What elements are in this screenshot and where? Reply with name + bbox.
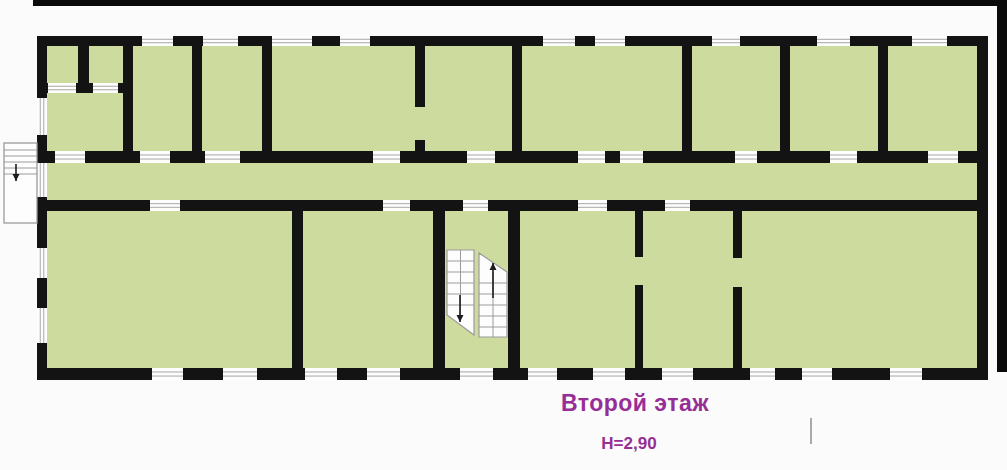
door-opening	[373, 151, 400, 163]
window-opening	[272, 36, 312, 46]
door-opening	[48, 83, 76, 93]
window-opening	[543, 36, 575, 46]
window-opening	[712, 36, 740, 46]
window-opening	[460, 368, 493, 380]
door-opening	[735, 151, 757, 163]
window-opening	[817, 36, 850, 46]
door-opening	[578, 200, 607, 211]
wall-segment	[733, 287, 742, 380]
door-opening	[620, 151, 643, 163]
door-opening	[463, 200, 488, 211]
door-opening	[665, 200, 690, 211]
floor-plan-screenshot: Второй этаж H=2,90	[0, 0, 1007, 470]
wall-segment	[78, 36, 89, 93]
window-opening	[528, 368, 557, 380]
floor-plan-svg	[0, 0, 1007, 470]
window-opening	[340, 36, 370, 46]
window-opening	[912, 36, 947, 46]
right-edge-bar	[997, 0, 1007, 372]
door-opening	[55, 151, 85, 163]
window-opening	[305, 368, 337, 380]
wall-segment	[508, 200, 520, 380]
door-opening	[37, 163, 47, 197]
window-opening	[203, 36, 238, 46]
door-opening	[830, 151, 857, 163]
wall-segment	[123, 36, 133, 163]
window-opening	[37, 98, 47, 135]
window-opening	[142, 36, 173, 46]
wall-segment	[733, 200, 742, 258]
wall-segment	[433, 200, 445, 380]
window-opening	[367, 368, 400, 380]
window-opening	[662, 368, 693, 380]
window-opening	[802, 368, 832, 380]
window-opening	[595, 36, 625, 46]
door-opening	[383, 200, 410, 211]
wall-segment	[635, 200, 643, 257]
wall-segment	[192, 36, 202, 163]
wall-segment	[512, 36, 522, 163]
window-opening	[750, 368, 775, 380]
door-opening	[150, 200, 180, 211]
window-opening	[37, 248, 47, 278]
door-opening	[205, 151, 240, 163]
top-edge-bar	[33, 0, 1007, 6]
stray-tick-mark	[810, 418, 812, 444]
door-opening	[93, 83, 118, 93]
door-opening	[578, 151, 605, 163]
door-opening	[928, 151, 958, 163]
wall-segment	[682, 36, 692, 163]
wall-segment	[878, 36, 888, 163]
window-opening	[890, 368, 922, 380]
floor-height-label: H=2,90	[529, 434, 729, 454]
wall-segment	[635, 285, 643, 380]
window-opening	[593, 368, 625, 380]
window-opening	[223, 368, 257, 380]
door-opening	[140, 151, 170, 163]
door-opening	[467, 151, 495, 163]
window-opening	[37, 308, 47, 343]
wall-segment	[262, 36, 272, 163]
exterior-stair	[4, 143, 37, 223]
window-opening	[152, 368, 183, 380]
wall-segment	[292, 200, 303, 380]
floor-title-label: Второй этаж	[520, 390, 750, 417]
wall-segment	[977, 36, 988, 380]
wall-segment	[415, 36, 425, 107]
wall-segment	[415, 140, 425, 163]
wall-segment	[780, 36, 790, 163]
